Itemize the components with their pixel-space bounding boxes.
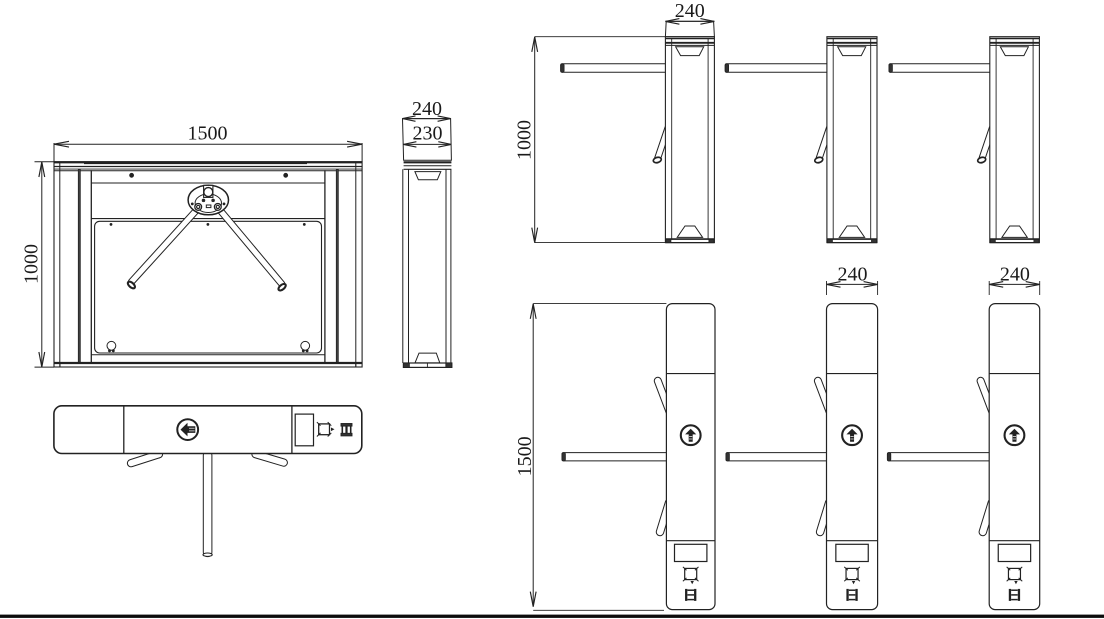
- svg-text:240: 240: [412, 98, 442, 120]
- svg-text:1000: 1000: [21, 244, 43, 284]
- svg-text:240: 240: [837, 263, 867, 285]
- svg-text:1000: 1000: [514, 120, 536, 160]
- svg-text:240: 240: [1000, 263, 1030, 285]
- svg-text:1500: 1500: [188, 123, 228, 145]
- svg-text:230: 230: [413, 122, 443, 144]
